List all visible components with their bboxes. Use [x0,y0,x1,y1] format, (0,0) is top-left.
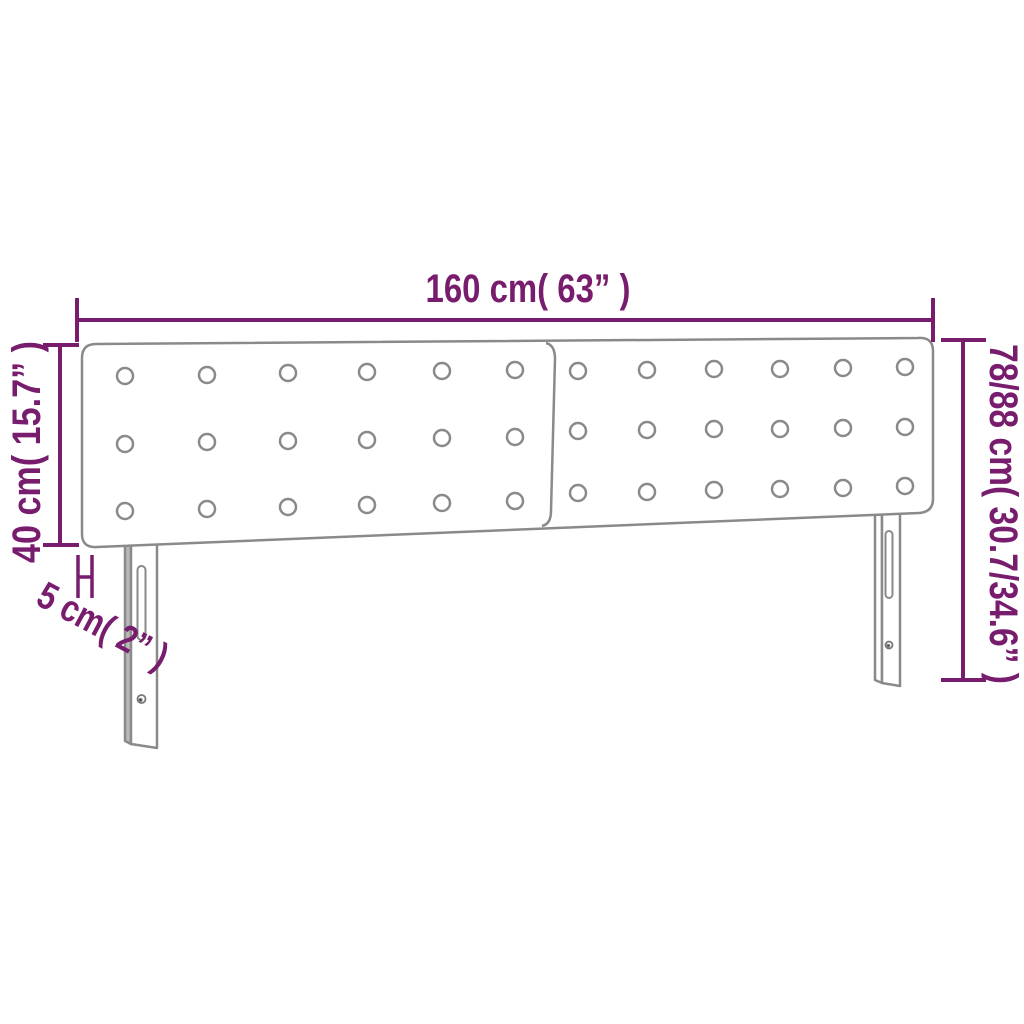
tufting-button [434,430,450,446]
tufting-button [359,497,375,513]
tufting-button [772,361,788,377]
tufting-button [359,364,375,380]
tufting-button [835,480,851,496]
tufting-button [706,482,722,498]
width-dimension-label: 160 cm( 63” ) [426,267,631,311]
tufting-button [507,362,523,378]
tufting-button [359,432,375,448]
tufting-button [835,420,851,436]
tufting-button [772,421,788,437]
tufting-button [434,363,450,379]
tufting-button [835,360,851,376]
tufting-button [117,503,133,519]
tufting-button [706,421,722,437]
tufting-button [507,493,523,509]
tufting-button [570,363,586,379]
tufting-button [199,367,215,383]
right-leg-slot [886,531,893,598]
total-height-dimension-label: 78/88 cm( 30.7/34.6” ) [981,344,1024,684]
right-leg-screw-dot [887,644,890,647]
tufting-button [280,433,296,449]
tufting-button [117,436,133,452]
tufting-button [117,368,133,384]
tufting-button [706,361,722,377]
tufting-button [199,434,215,450]
product-dimension-diagram: 160 cm( 63” ) 40 cm( 15.7” ) 78/88 cm( 3… [0,0,1024,1024]
tufting-button [570,423,586,439]
tufting-button [897,419,913,435]
tufting-button [897,359,913,375]
tufting-button [639,362,655,378]
tufting-button [199,501,215,517]
tufting-button [639,422,655,438]
tufting-button [570,485,586,501]
tufting-button [434,495,450,511]
tufting-button [507,429,523,445]
tufting-button [772,481,788,497]
panel-height-dimension-label: 40 cm( 15.7” ) [5,341,49,563]
headboard-diagram-svg: 160 cm( 63” ) 40 cm( 15.7” ) 78/88 cm( 3… [0,0,1024,1024]
tufting-button [639,484,655,500]
left-leg-screw-dot [139,698,142,701]
tufting-button [897,478,913,494]
tufting-button [280,499,296,515]
tufting-button [280,365,296,381]
